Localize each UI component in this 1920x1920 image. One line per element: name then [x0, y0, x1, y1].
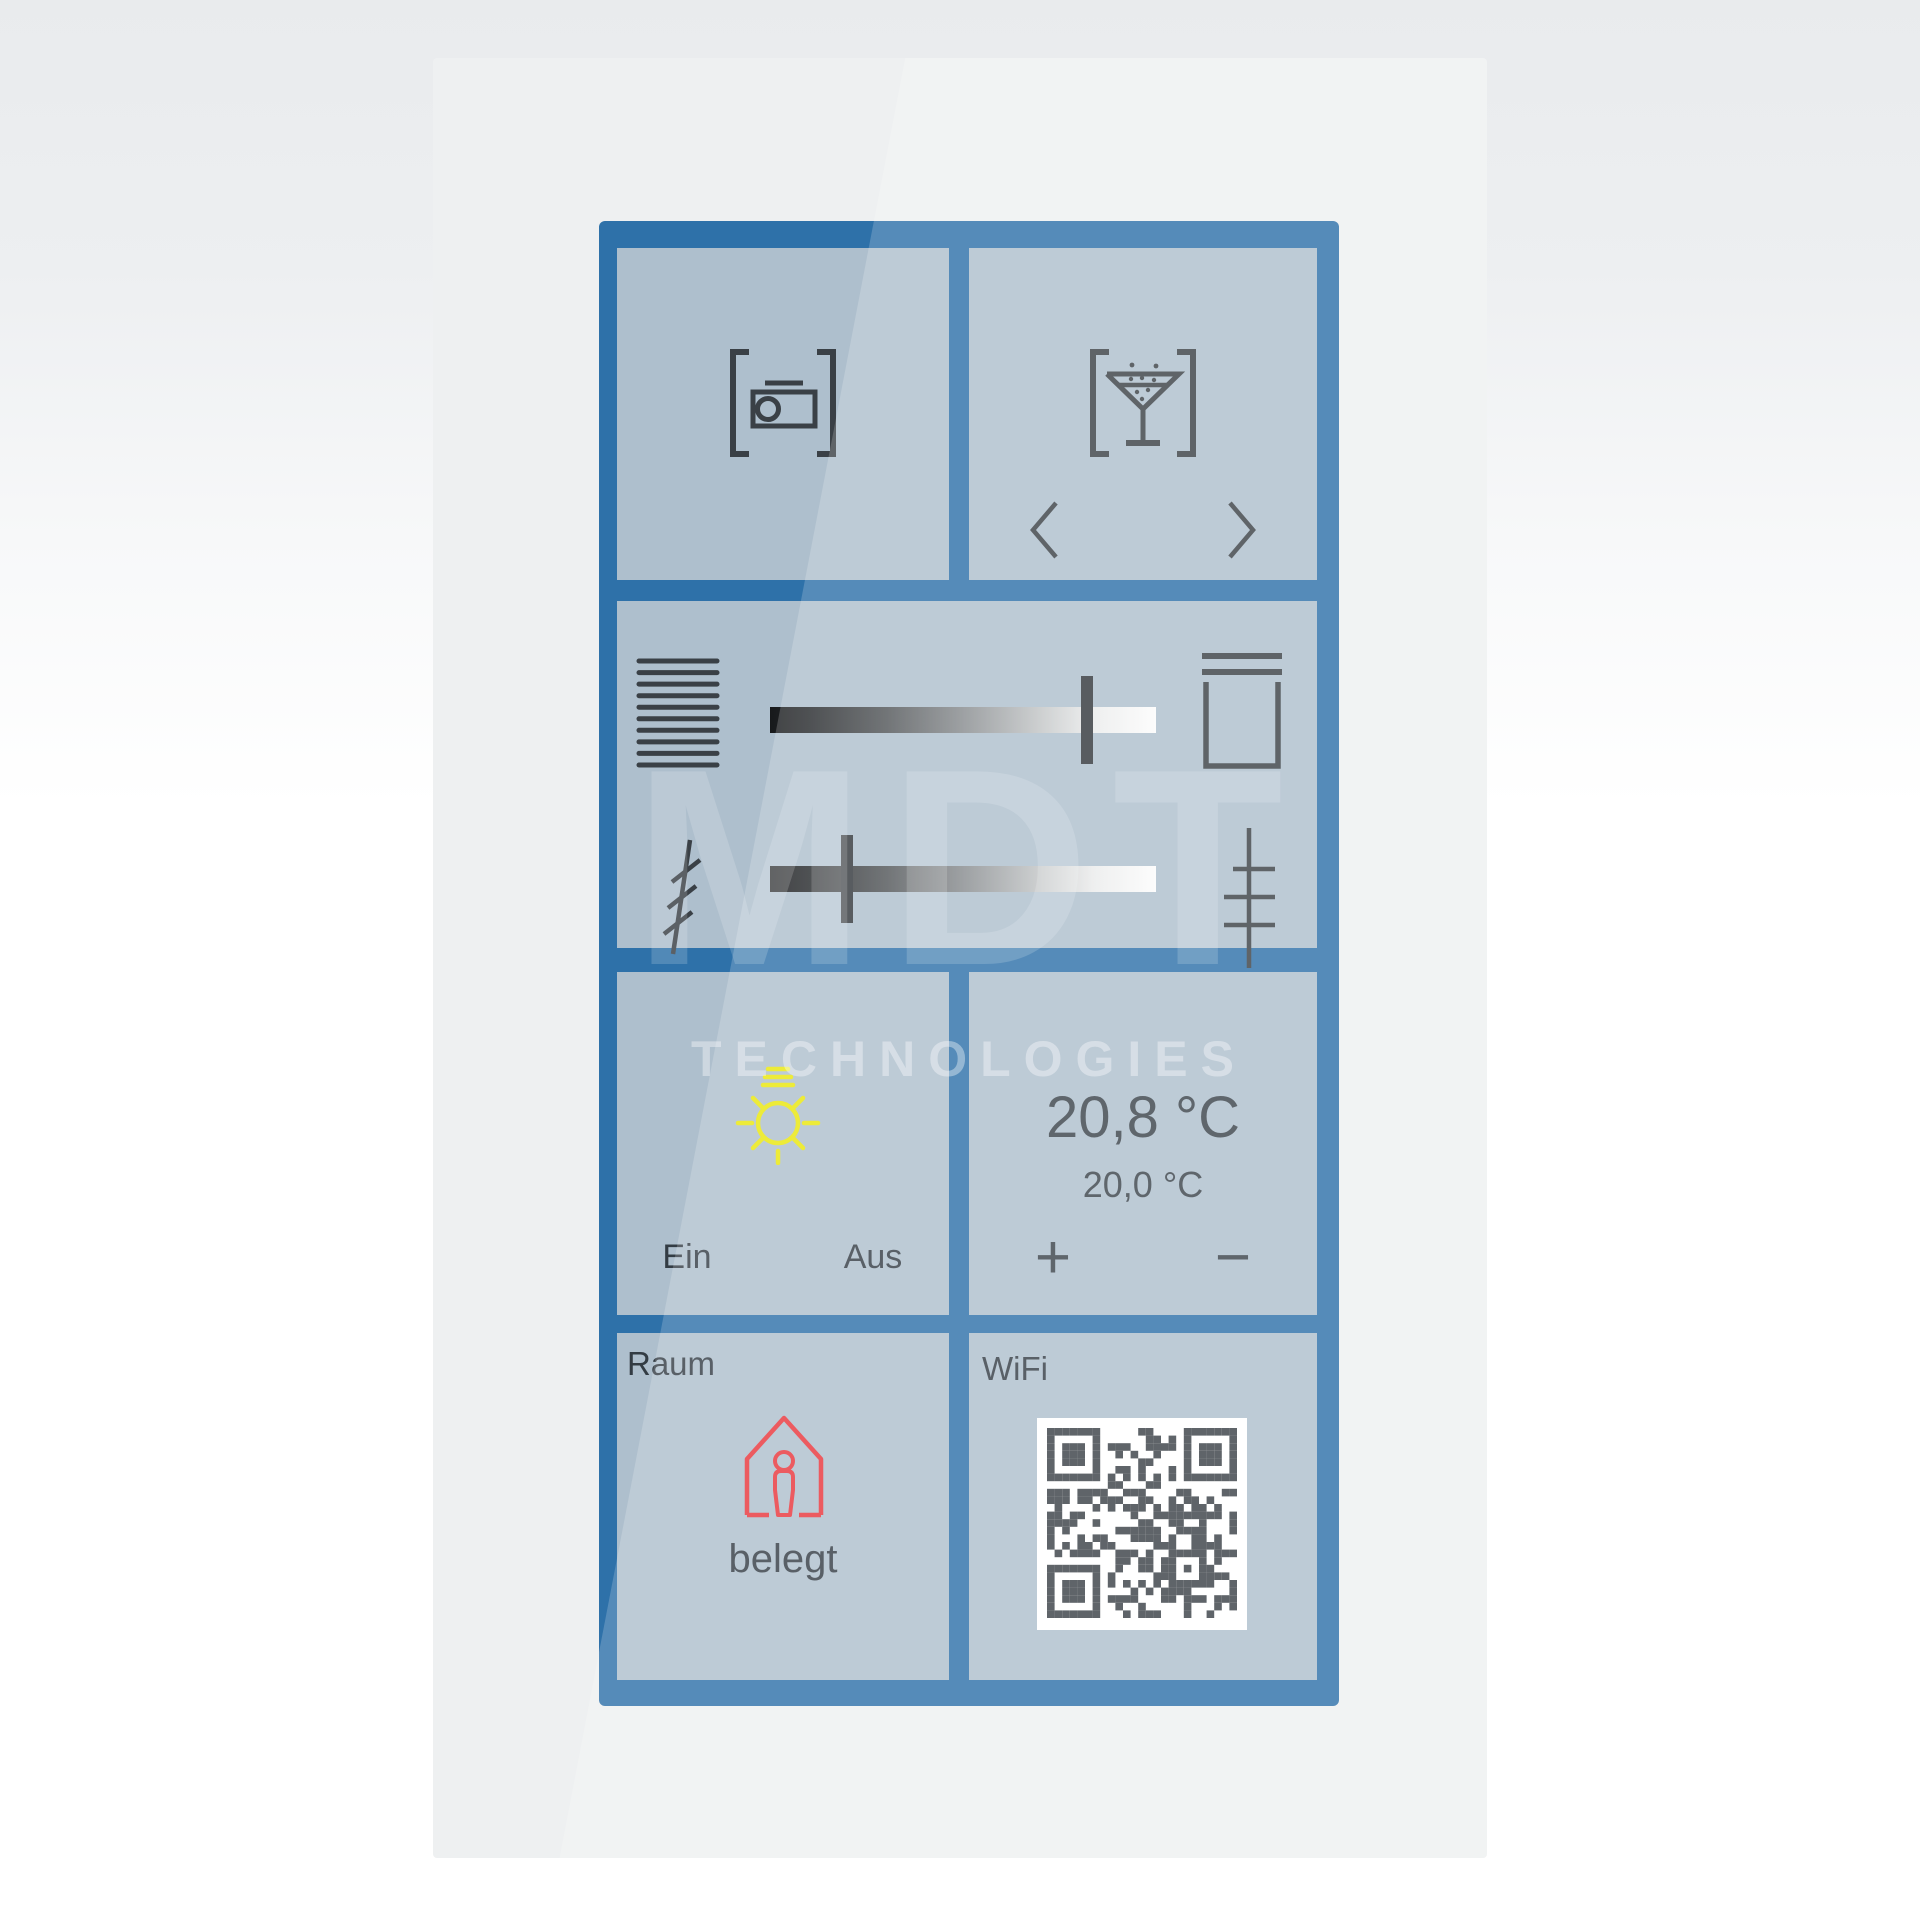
tile-shading-control: [617, 601, 1317, 948]
wifi-label: WiFi: [982, 1350, 1048, 1388]
setpoint-temperature: 20,0 °C: [969, 1164, 1317, 1206]
projector-in-brackets-icon: [727, 348, 839, 458]
blinds-closed-icon: [636, 657, 720, 769]
tile-grid-frame: Ein Aus 20,8 °C 20,0 °C + − Raum: [599, 221, 1339, 1706]
shading-tilt-handle[interactable]: [841, 835, 853, 923]
tile-room-occupancy[interactable]: Raum belegt: [617, 1333, 949, 1680]
chevron-left-icon: [1026, 498, 1062, 562]
slats-horizontal-icon: [1220, 825, 1278, 971]
scene-next-button[interactable]: [1224, 498, 1260, 562]
glass-panel: Ein Aus 20,8 °C 20,0 °C + − Raum: [433, 58, 1487, 1858]
tile-wifi-qr: WiFi: [969, 1333, 1317, 1680]
shading-position-slider[interactable]: [770, 707, 1156, 733]
temperature-decrease-button[interactable]: −: [1193, 1220, 1273, 1300]
cocktail-in-brackets-icon: [1086, 348, 1200, 458]
qr-code: [1037, 1418, 1247, 1630]
temperature-increase-button[interactable]: +: [1013, 1220, 1093, 1300]
tile-climate-control: 20,8 °C 20,0 °C + −: [969, 972, 1317, 1315]
sun-icon: [730, 1065, 826, 1165]
shading-position-handle[interactable]: [1081, 676, 1093, 764]
room-status-text: belegt: [617, 1537, 949, 1582]
blinds-down-button[interactable]: [636, 657, 720, 769]
shutter-open-icon: [1200, 650, 1284, 770]
room-label: Raum: [627, 1345, 715, 1383]
chevron-right-icon: [1224, 498, 1260, 562]
blinds-up-button[interactable]: [1200, 650, 1284, 770]
screenshot-stage: Ein Aus 20,8 °C 20,0 °C + − Raum: [0, 0, 1920, 1920]
tile-light-control: Ein Aus: [617, 972, 949, 1315]
tile-projector-scene[interactable]: [617, 248, 949, 580]
slats-tilted-icon: [660, 837, 704, 957]
light-toggle-button[interactable]: [730, 1065, 826, 1165]
tile-party-scene[interactable]: [969, 248, 1317, 580]
current-temperature: 20,8 °C: [969, 1084, 1317, 1151]
shading-tilt-slider[interactable]: [770, 866, 1156, 892]
slats-horizontal-button[interactable]: [1220, 825, 1278, 971]
slats-tilt-button[interactable]: [660, 837, 704, 957]
scene-prev-button[interactable]: [1026, 498, 1062, 562]
light-off-button[interactable]: Aus: [803, 1238, 943, 1277]
house-occupied-icon: [742, 1413, 826, 1519]
light-on-button[interactable]: Ein: [617, 1238, 757, 1277]
